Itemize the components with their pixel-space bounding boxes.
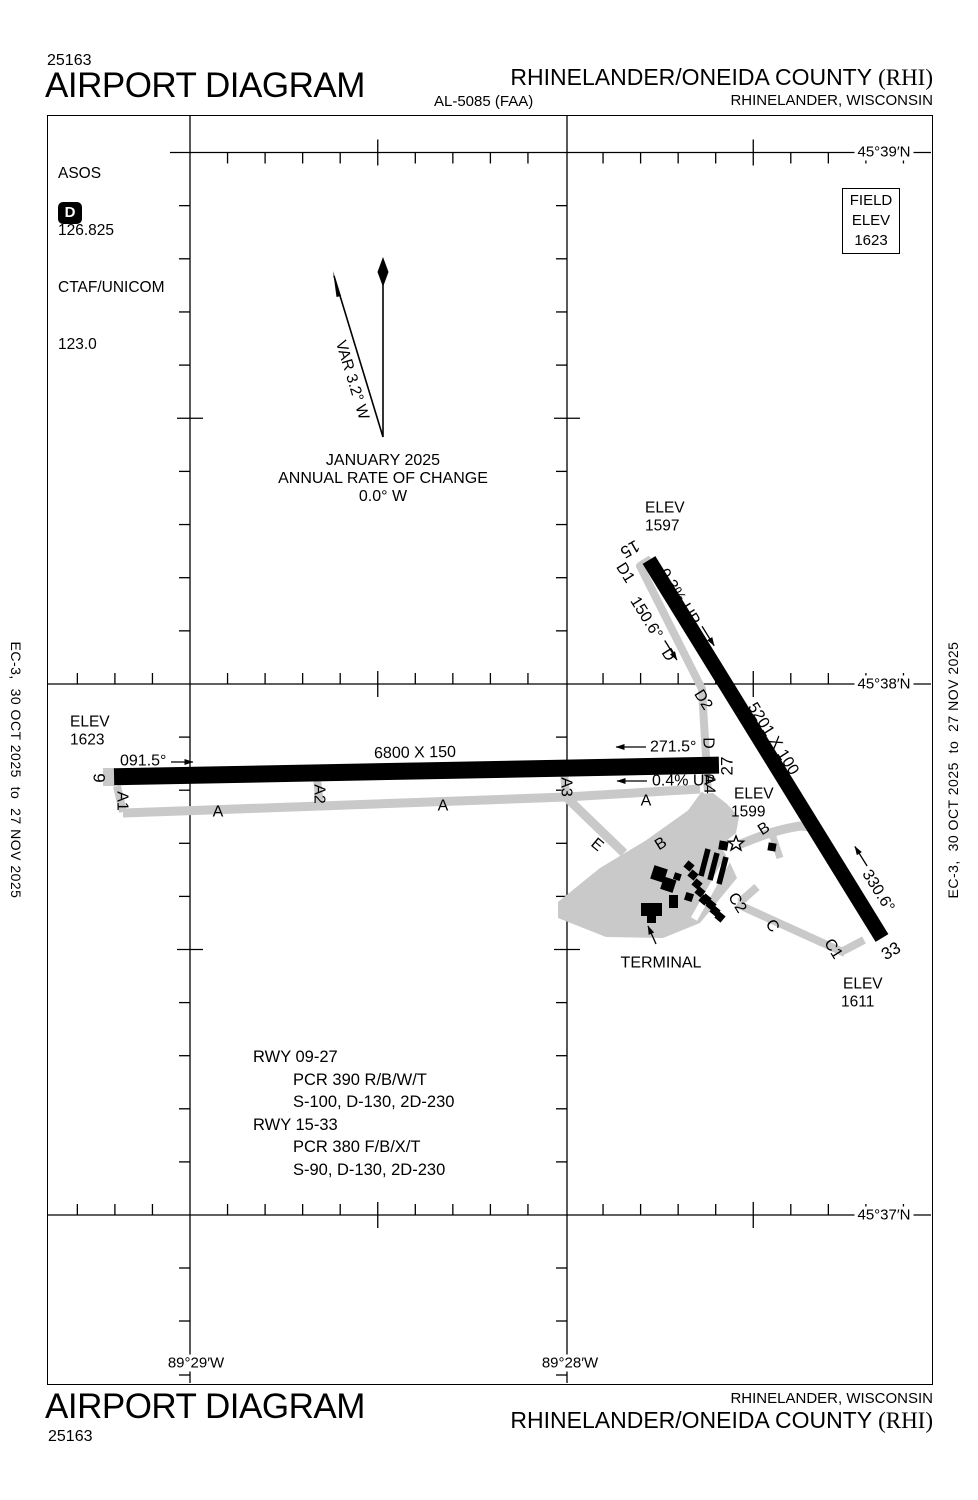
terminal-label: TERMINAL: [621, 955, 702, 972]
runway-end-9: 9: [90, 773, 109, 782]
elev-09-label: ELEV: [70, 714, 110, 731]
taxiway-d-label: D: [658, 646, 679, 665]
taxiway-a1-label: A1: [114, 791, 131, 811]
elev-15-value: 1597: [645, 518, 679, 535]
airport-diagram-page: 25163 AIRPORT DIAGRAM AL-5085 (FAA) RHIN…: [0, 0, 978, 1500]
longitude-label-8928: 89°28′W: [539, 1355, 601, 1372]
airport-id-text-bottom: (RHI): [878, 1408, 933, 1433]
building: [718, 840, 728, 850]
building: [767, 842, 776, 851]
taxiway-d1-label: D1: [612, 560, 637, 586]
page-title-bottom: AIRPORT DIAGRAM: [45, 1388, 365, 1426]
rwy-09-27-pcr: PCR 390 R/B/W/T: [293, 1069, 454, 1092]
ctaf-label: CTAF/UNICOM: [58, 278, 164, 297]
magnetic-north-barb-icon: [333, 271, 341, 297]
variation-date: JANUARY 2025: [278, 452, 488, 470]
airport-city-bottom: RHINELANDER, WISCONSIN: [730, 1390, 933, 1407]
true-north-arrowhead-icon: [378, 257, 389, 287]
annual-rate-block: JANUARY 2025 ANNUAL RATE OF CHANGE 0.0° …: [278, 452, 488, 506]
elev-33: ELEV 1611: [841, 976, 883, 1011]
runway-end-15: 15: [617, 536, 643, 562]
chart-number-bottom: 25163: [48, 1428, 93, 1446]
elev-09-value: 1623: [70, 732, 104, 749]
north-arrows: VAR 3.2° W: [332, 257, 389, 437]
heading-33-arrow-icon: [855, 846, 867, 866]
airport-name-text-bottom: RHINELANDER/ONEIDA COUNTY: [510, 1407, 871, 1433]
taxiway-a-label: A: [438, 798, 449, 815]
taxiways: [103, 559, 864, 953]
runway-09-heading: 091.5°: [120, 753, 166, 770]
runway-09-27-dimensions: 6800 X 150: [374, 744, 456, 762]
elev-27-value: 1599: [731, 804, 765, 821]
field-elev-value: 1623: [843, 231, 899, 251]
elev-27-label: ELEV: [734, 786, 774, 803]
field-elev-box: FIELD ELEV 1623: [842, 188, 900, 254]
elev-15-label: ELEV: [645, 500, 685, 517]
terminal-building: [647, 914, 656, 923]
latitude-label-4538: 45°38′N: [854, 676, 913, 693]
taxiway-a-label: A: [641, 793, 652, 810]
taxiway-a-path: [123, 789, 700, 813]
rwy-15-33-codes: S-90, D-130, 2D-230: [293, 1159, 454, 1182]
elev-27: ELEV 1599: [731, 786, 774, 821]
elev-33-value: 1611: [841, 994, 874, 1011]
rwy-09-27-codes: S-100, D-130, 2D-230: [293, 1091, 454, 1114]
rwy-09-27-heading-line: RWY 09-27: [253, 1046, 454, 1069]
elev-15: ELEV 1597: [645, 500, 685, 535]
runway-end-27: 27: [718, 757, 737, 776]
ctaf-frequency: 123.0: [58, 335, 164, 354]
latitude-label-4539: 45°39′N: [854, 144, 913, 161]
field-elev-line1: FIELD: [843, 191, 899, 211]
comm-info-box: ASOS 126.825 CTAF/UNICOM 123.0: [58, 126, 164, 392]
taxiway-d-label: D: [700, 737, 717, 749]
graticule-lines: [47, 115, 931, 1383]
annual-rate-value: 0.0° W: [278, 488, 488, 506]
taxiway-a4-label: A4: [701, 774, 718, 794]
elev-09: ELEV 1623: [70, 714, 110, 749]
taxiway-d2-label: D2: [690, 687, 715, 713]
elev-33-label: ELEV: [843, 976, 883, 993]
latitude-label-4537: 45°37′N: [854, 1207, 913, 1224]
d-atis-badge-icon: D: [58, 202, 82, 224]
asos-label: ASOS: [58, 164, 164, 183]
taxiway-c1-path: [843, 940, 864, 951]
runway-end-33: 33: [878, 938, 904, 964]
runway-data-block: RWY 09-27 PCR 390 R/B/W/T S-100, D-130, …: [253, 1046, 454, 1181]
taxiway-a2-label: A2: [311, 784, 328, 804]
rwy-15-33-heading-line: RWY 15-33: [253, 1114, 454, 1137]
taxiway-a-label: A: [213, 804, 224, 821]
field-elev-line2: ELEV: [843, 211, 899, 231]
airport-name-bottom: RHINELANDER/ONEIDA COUNTY (RHI): [510, 1407, 933, 1434]
longitude-label-8929: 89°29′W: [165, 1355, 227, 1372]
building: [669, 895, 678, 908]
rwy-15-33-pcr: PCR 380 F/B/X/T: [293, 1136, 454, 1159]
runways: [114, 560, 882, 938]
annual-rate-label: ANNUAL RATE OF CHANGE: [278, 470, 488, 488]
taxiway-a3-label: A3: [558, 777, 575, 797]
runway-27-heading: 271.5°: [650, 739, 696, 756]
